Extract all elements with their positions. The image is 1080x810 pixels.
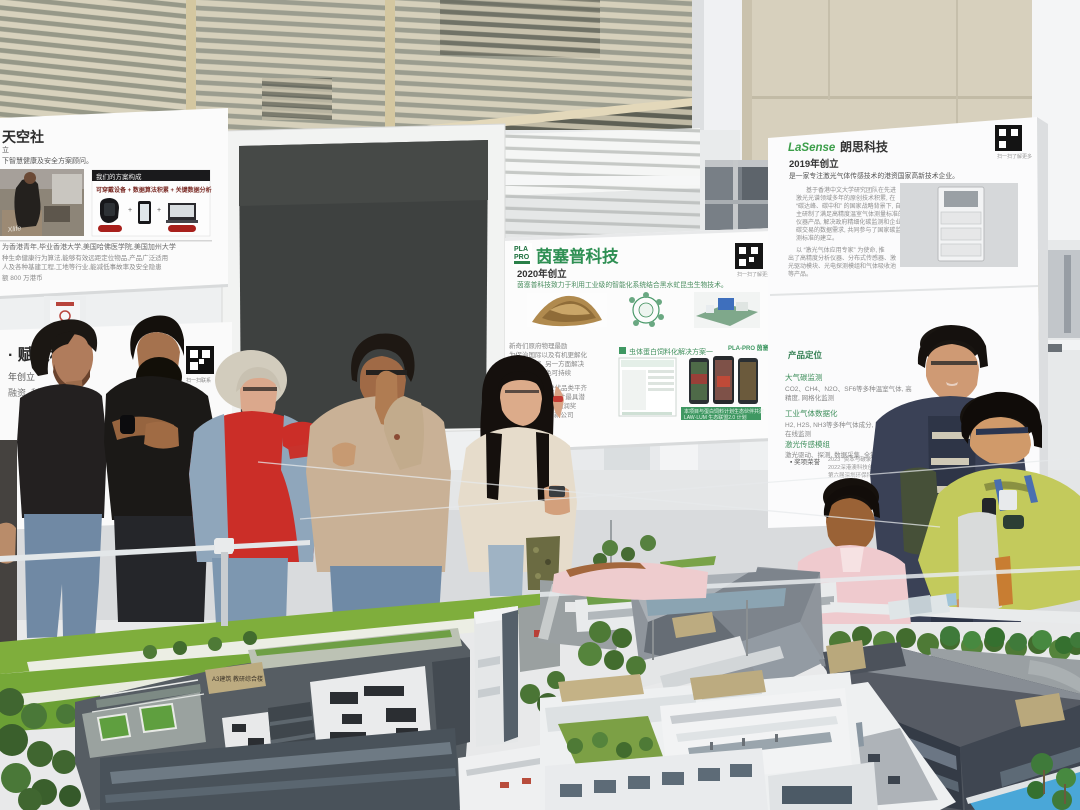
svg-text:+: + [157,207,161,214]
svg-text:茵塞普科技: 茵塞普科技 [536,246,619,266]
svg-text:下智慧健康及安全方案顾问。: 下智慧健康及安全方案顾问。 [2,156,93,165]
svg-text:2020年创立: 2020年创立 [517,268,567,280]
svg-text:PRO: PRO [514,254,530,261]
svg-text:LaSense: LaSense [788,142,836,154]
svg-text:产品定位: 产品定位 [788,350,823,360]
svg-text:虫体蛋白饲料化解决方案一: 虫体蛋白饲料化解决方案一 [629,347,713,356]
svg-text:新奇们原府物理最励: 新奇们原府物理最励 [509,341,568,350]
svg-text:等产品。: 等产品。 [788,270,812,278]
svg-text:光驱动模块、光电探测模组和气体吸收池: 光驱动模块、光电探测模组和气体吸收池 [788,262,896,270]
svg-text:在线监测: 在线监测 [785,429,812,438]
svg-text:以 “激光气体应用专家” 为使命, 推: 以 “激光气体应用专家” 为使命, 推 [796,246,885,254]
svg-text:扫一扫联系: 扫一扫联系 [186,377,211,384]
svg-text:是一家专注激光气体传感技术的港资国家高新技术企业。: 是一家专注激光气体传感技术的港资国家高新技术企业。 [789,171,959,180]
svg-text:+: + [128,207,132,214]
svg-text:CO2、CH4、N2O、SF6等多种温室气体, 高: CO2、CH4、N2O、SF6等多种温室气体, 高 [785,384,912,393]
svg-text:工业气体数据化: 工业气体数据化 [785,408,838,418]
svg-text:扫一扫了解更多: 扫一扫了解更多 [997,153,1032,160]
svg-text:基于香港中文大学研究团队在先进: 基于香港中文大学研究团队在先进 [806,186,896,194]
svg-text:激光光谱领域多年的原创技术积累, 在: 激光光谱领域多年的原创技术积累, 在 [796,194,895,202]
svg-text:本项目与蛋白饲料计划生态伙伴共建: 本项目与蛋白饲料计划生态伙伴共建 [684,408,764,415]
svg-text:种生命健康行为算法,能够有效远距定位物品,产品广泛适用: 种生命健康行为算法,能够有效远距定位物品,产品广泛适用 [2,253,168,262]
svg-text:LAW·LUM 生态联盟2.0 计划: LAW·LUM 生态联盟2.0 计划 [684,414,747,421]
svg-text:测标准的建立。: 测标准的建立。 [796,234,838,242]
svg-text:2019年创立: 2019年创立 [789,158,839,170]
svg-text:PLA: PLA [514,246,528,253]
svg-text:人及各种基建工程,工地等行业,能减低事故率及安全隐患: 人及各种基建工程,工地等行业,能减低事故率及安全隐患 [2,262,162,271]
svg-text:朗思科技: 朗思科技 [840,139,889,154]
svg-text:出了高精度分析仪器、分布式传感器、激: 出了高精度分析仪器、分布式传感器、激 [788,254,896,262]
svg-text:我们的方案构成: 我们的方案构成 [96,172,142,181]
svg-text:“碳达峰、碳中和” 的国家战略背景下, 自: “碳达峰、碳中和” 的国家战略背景下, 自 [796,202,901,210]
svg-text:激光传感模组: 激光传感模组 [785,439,830,449]
svg-text:主研制了满足高精度温室气体测量标准的: 主研制了满足高精度温室气体测量标准的 [796,210,904,218]
svg-text:仪器产品, 解决政府精细化碳监测和企业: 仪器产品, 解决政府精细化碳监测和企业 [796,218,901,226]
svg-text:为香港青年,毕业香港大学,美国哈佛医学院,美国加州大学: 为香港青年,毕业香港大学,美国哈佛医学院,美国加州大学 [2,242,176,251]
svg-text:可穿戴设备 + 数据算法积累 + 关键数据分析: 可穿戴设备 + 数据算法积累 + 关键数据分析 [96,186,212,194]
svg-text:额 800 万港币: 额 800 万港币 [2,273,42,282]
svg-text:茵塞普科技致力于利用工业级的智能化系统结合黑水虻昆虫生物技术: 茵塞普科技致力于利用工业级的智能化系统结合黑水虻昆虫生物技术。 [517,280,728,289]
svg-text:▪ 奖项荣誉: ▪ 奖项荣誉 [790,457,821,466]
svg-text:年创立: 年创立 [8,371,35,382]
svg-text:A3建筑 教研综合楼: A3建筑 教研综合楼 [212,675,263,683]
svg-text:天空社: 天空社 [2,129,44,145]
svg-text:精度, 网格化监测: 精度, 网格化监测 [785,393,835,402]
svg-text:扫一扫了解更多: 扫一扫了解更多 [737,271,772,278]
svg-text:立: 立 [2,145,9,154]
svg-text:大气碳监测: 大气碳监测 [785,372,823,382]
svg-text:碳交易的数据需求, 共同参与了国家碳监: 碳交易的数据需求, 共同参与了国家碳监 [796,226,901,234]
